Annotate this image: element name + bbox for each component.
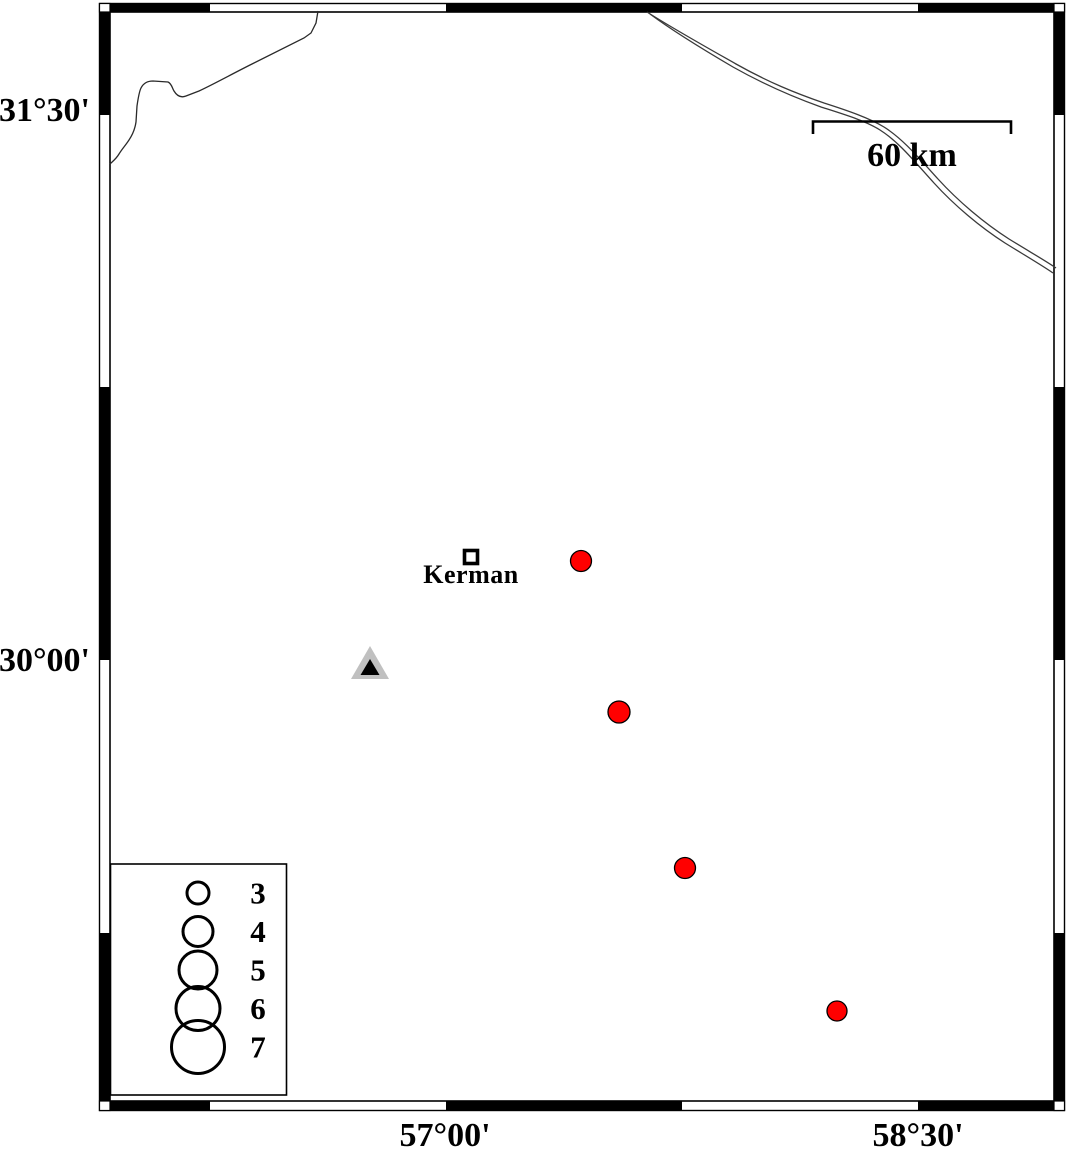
seismicity-map: 60 km 31°30' 30°00' 57°00' 58°30' Kerman… bbox=[0, 0, 1066, 1149]
longitude-label-57-00: 57°00' bbox=[399, 1117, 490, 1149]
earthquake-marker bbox=[571, 551, 592, 572]
longitude-label-58-30: 58°30' bbox=[872, 1117, 963, 1149]
frame-tick-segment bbox=[446, 1101, 682, 1111]
frame-tick-segment bbox=[446, 4, 682, 13]
map-canvas: 60 km 31°30' 30°00' 57°00' 58°30' Kerman… bbox=[0, 0, 1066, 1149]
frame-tick-segment bbox=[110, 4, 210, 13]
frame-corner bbox=[100, 4, 111, 13]
frame-tick-segment bbox=[100, 387, 111, 660]
latitude-label-31-30: 31°30' bbox=[0, 92, 90, 129]
frame-tick-segment bbox=[110, 1101, 210, 1111]
frame-tick-segment bbox=[918, 4, 1054, 13]
scale-bar-label: 60 km bbox=[867, 137, 957, 174]
frame-corner bbox=[1054, 4, 1065, 13]
earthquake-marker bbox=[675, 858, 696, 879]
frame-tick-segment bbox=[100, 12, 111, 115]
frame-tick-segment bbox=[100, 933, 111, 1101]
legend-label: 4 bbox=[250, 914, 266, 949]
frame-tick-segment bbox=[1054, 933, 1065, 1101]
legend-label: 3 bbox=[250, 876, 266, 911]
latitude-label-30-00: 30°00' bbox=[0, 642, 90, 679]
city-label: Kerman bbox=[423, 560, 518, 589]
frame-corner bbox=[100, 1101, 111, 1111]
legend-label: 5 bbox=[250, 953, 266, 988]
frame-tick-segment bbox=[1054, 387, 1065, 660]
frame-tick-segment bbox=[1054, 12, 1065, 115]
legend-label: 6 bbox=[250, 991, 266, 1026]
magnitude-legend: 34567 bbox=[111, 864, 287, 1095]
frame-corner bbox=[1054, 1101, 1065, 1111]
earthquake-marker bbox=[608, 701, 630, 723]
legend-label: 7 bbox=[250, 1030, 266, 1065]
frame-tick-segment bbox=[918, 1101, 1054, 1111]
earthquake-marker bbox=[827, 1001, 847, 1021]
